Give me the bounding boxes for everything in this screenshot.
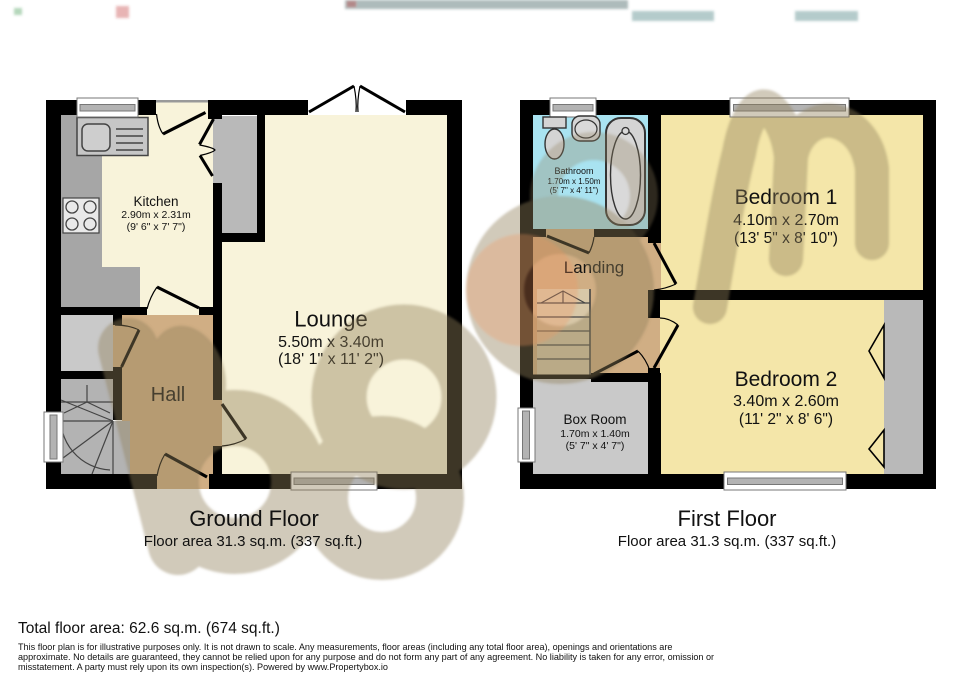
svg-text:Kitchen: Kitchen [133, 194, 178, 209]
svg-text:approximate. No details are gu: approximate. No details are guaranteed, … [18, 652, 714, 662]
svg-text:First Floor: First Floor [678, 506, 777, 531]
svg-text:Total floor area: 62.6 sq.m. (: Total floor area: 62.6 sq.m. (674 sq.ft.… [18, 620, 280, 637]
svg-text:2.90m x 2.31m: 2.90m x 2.31m [121, 209, 191, 221]
svg-text:(11' 2" x 8' 6"): (11' 2" x 8' 6") [739, 411, 833, 428]
svg-text:3.40m x 2.60m: 3.40m x 2.60m [733, 393, 839, 410]
svg-text:(9' 6" x 7' 7"): (9' 6" x 7' 7") [127, 221, 186, 233]
svg-text:Box Room: Box Room [563, 412, 626, 427]
svg-text:1.70m x 1.40m: 1.70m x 1.40m [560, 428, 630, 440]
svg-text:This floor plan is for illustr: This floor plan is for illustrative purp… [18, 642, 672, 652]
svg-text:Ground Floor: Ground Floor [189, 506, 319, 531]
svg-text:Floor area 31.3 sq.m. (337 sq.: Floor area 31.3 sq.m. (337 sq.ft.) [618, 533, 836, 550]
svg-text:(5' 7" x 4' 7"): (5' 7" x 4' 7") [566, 440, 625, 452]
svg-text:Bedroom 2: Bedroom 2 [735, 368, 838, 391]
svg-text:misstatement. A party must rel: misstatement. A party must rely upon its… [18, 662, 388, 672]
svg-text:Floor area 31.3 sq.m. (337 sq.: Floor area 31.3 sq.m. (337 sq.ft.) [144, 533, 362, 550]
